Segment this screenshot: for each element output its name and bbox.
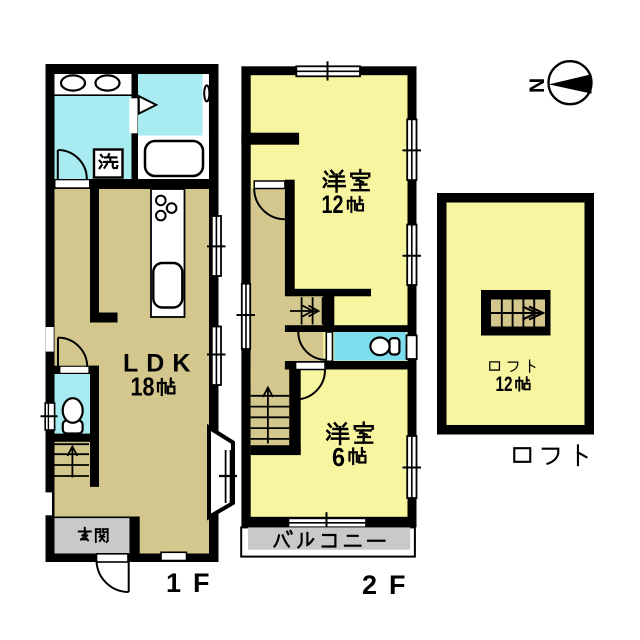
- svg-text:2F: 2F: [362, 570, 418, 600]
- svg-text:12: 12: [322, 191, 344, 219]
- svg-text:N: N: [525, 78, 548, 93]
- svg-text:6: 6: [332, 442, 345, 472]
- svg-text:18: 18: [131, 372, 155, 402]
- svg-text:1F: 1F: [166, 568, 222, 598]
- svg-text:12: 12: [496, 373, 513, 396]
